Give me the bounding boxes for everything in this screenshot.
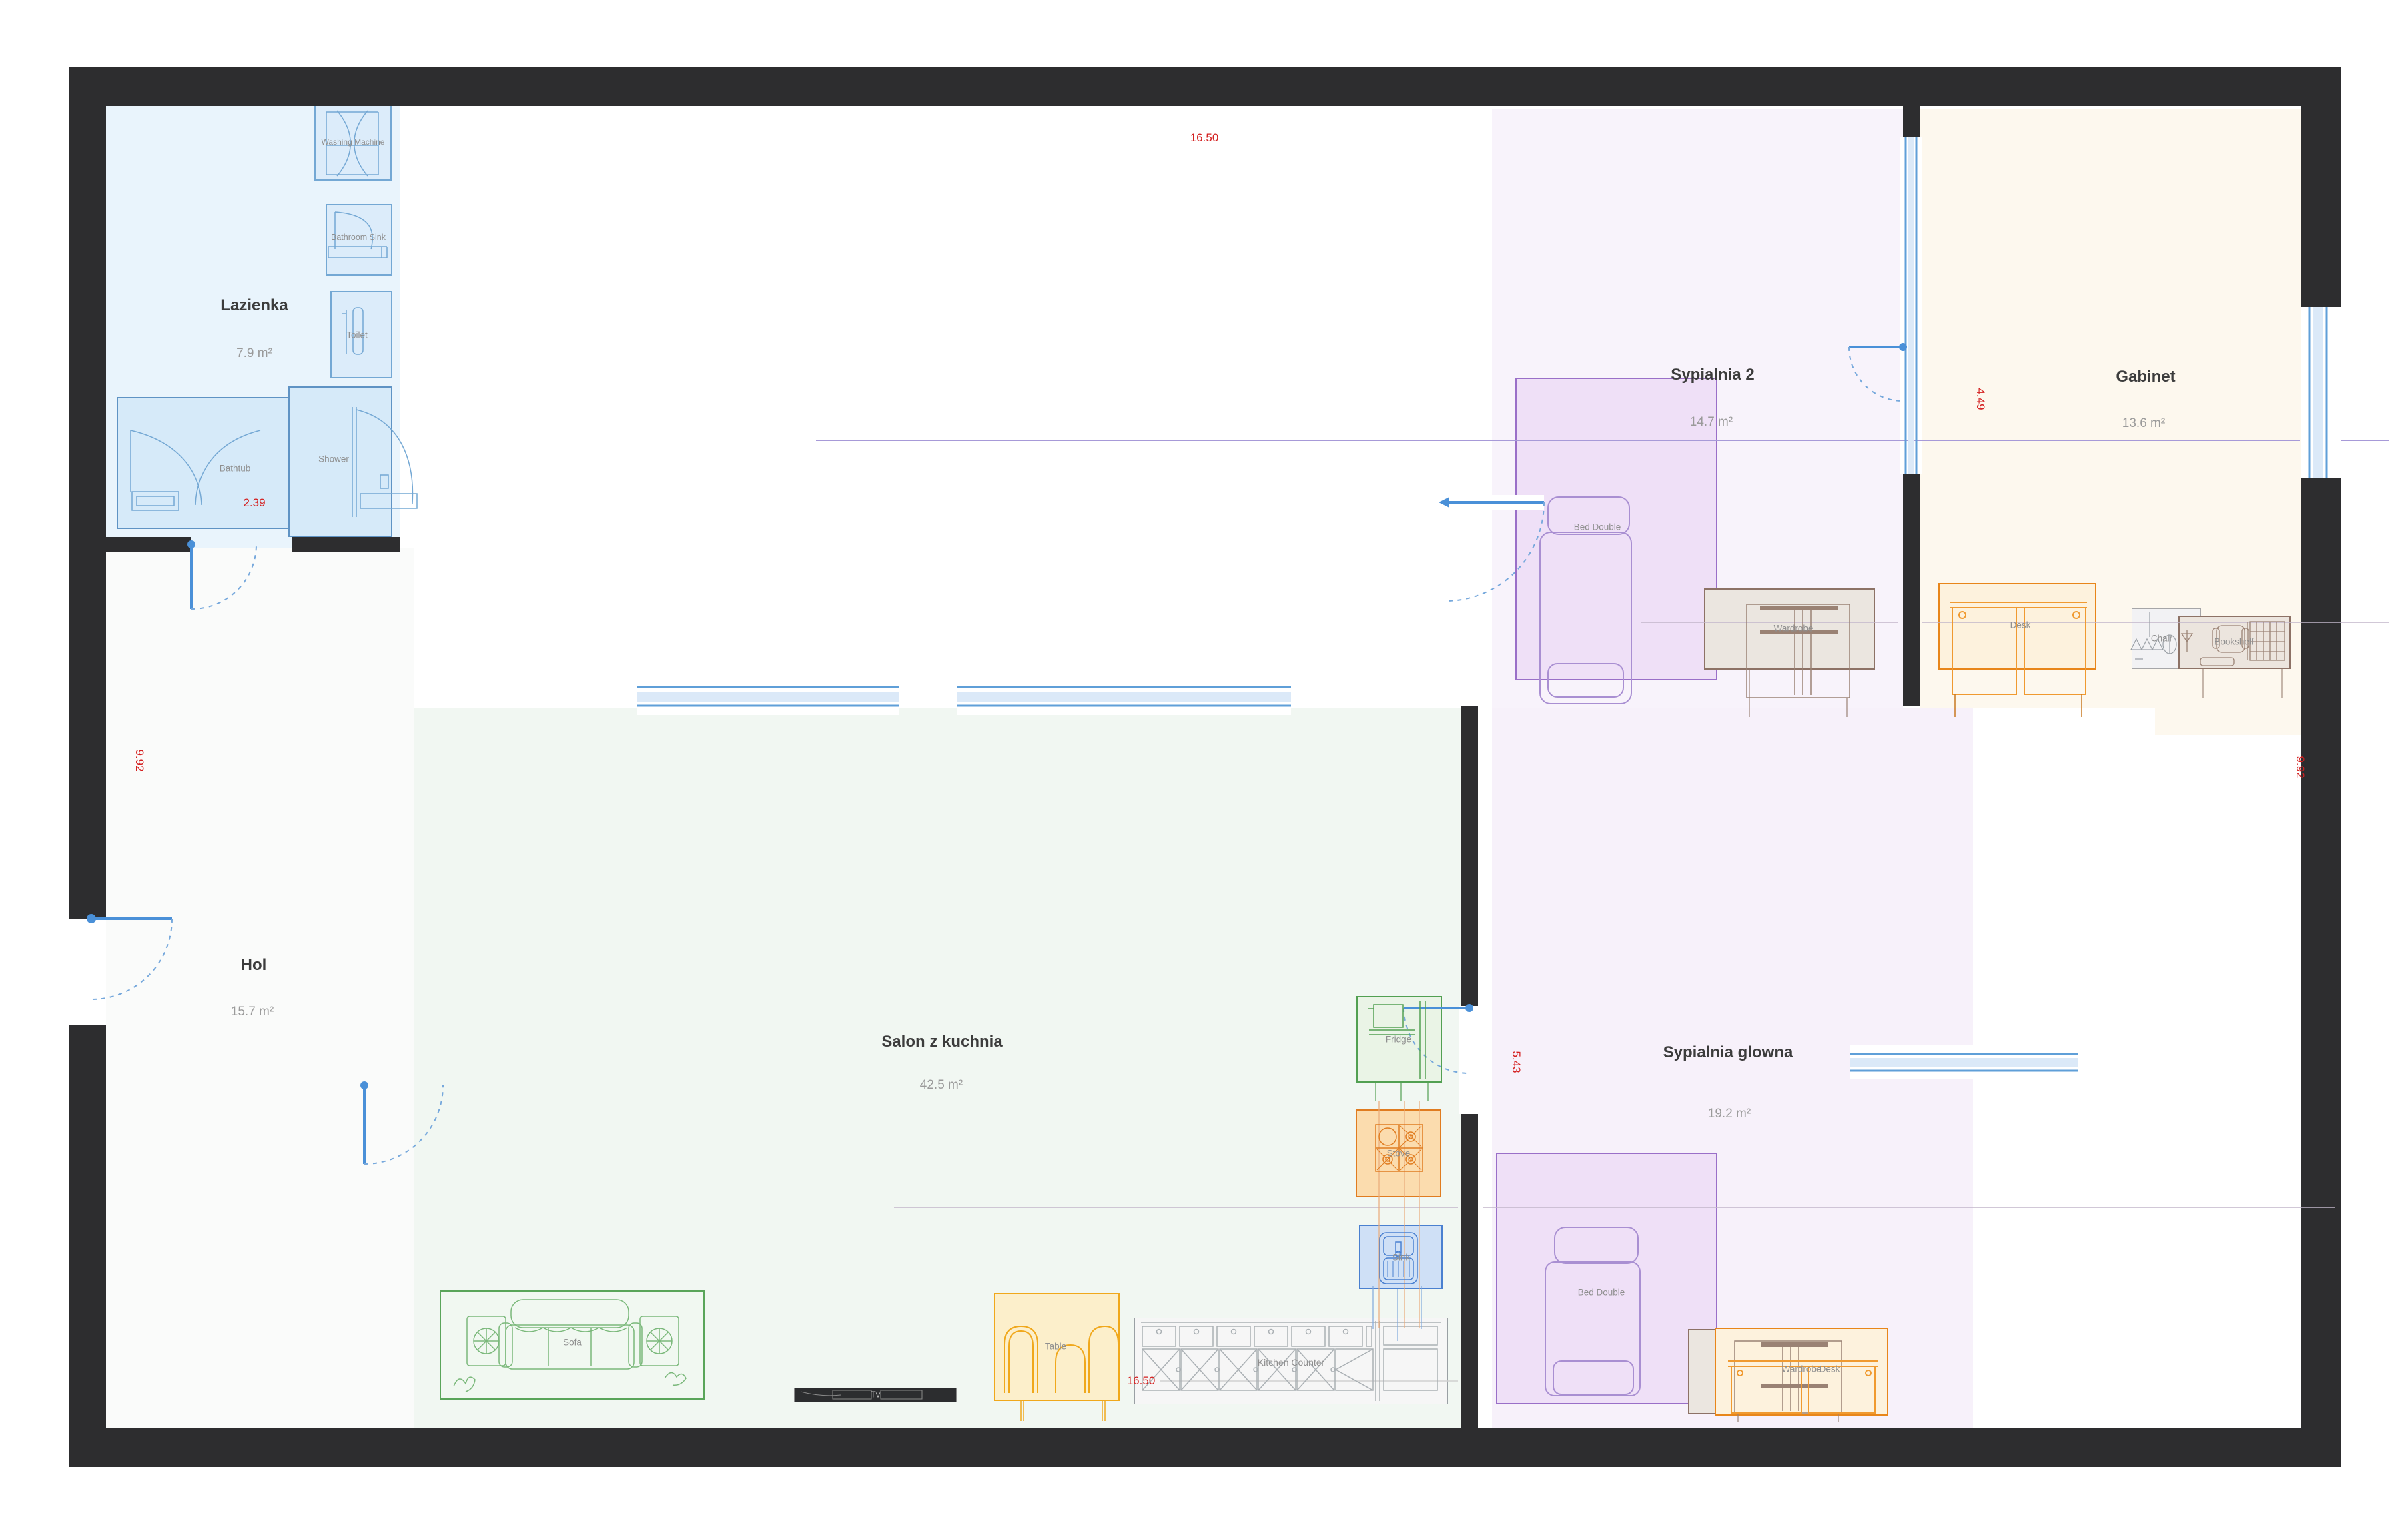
room-title-sypialnia-2: Sypialnia 2 (1671, 366, 1754, 384)
dimension-top-width: 16.50 (1190, 131, 1219, 145)
wall-bottom (69, 1428, 2341, 1467)
room-title-gabinet: Gabinet (2116, 368, 2175, 386)
wall-left-upper (69, 67, 106, 919)
wall-right-upper (2301, 67, 2341, 307)
wall-gabinet-stub (1903, 106, 1920, 137)
table[interactable] (994, 1293, 1120, 1401)
door-opening-salon (1459, 1006, 1481, 1114)
room-title-hol: Hol (241, 956, 267, 975)
desk-gabinet[interactable] (1938, 583, 2096, 670)
bed-zone-sypialnia-2[interactable] (1515, 378, 1717, 680)
wall-right-lower (2301, 478, 2341, 1428)
zone-gabinet-ext (2155, 708, 2301, 735)
window-band-2 (957, 677, 1291, 715)
dimension-bottom-width: 16.50 (1127, 1374, 1156, 1388)
wall-salon-east-lower (1461, 1114, 1478, 1428)
window-band-right-wall (2301, 307, 2341, 478)
room-area-sypialnia-2: 14.7 m² (1690, 415, 1733, 430)
tv[interactable] (794, 1388, 957, 1402)
wardrobe-sypialnia-2[interactable] (1704, 588, 1875, 670)
fridge[interactable] (1356, 996, 1442, 1083)
kitchen-counter[interactable] (1134, 1318, 1448, 1404)
shower[interactable] (288, 386, 392, 537)
desk-sypialnia-glowna[interactable] (1715, 1328, 1888, 1416)
window-band-1 (637, 677, 899, 715)
wall-top (69, 67, 2341, 106)
bed-zone-sypialnia-glowna[interactable] (1496, 1153, 1717, 1404)
window-band-sypialnia-glowna (1850, 1045, 2078, 1079)
sofa-group[interactable] (440, 1290, 705, 1400)
wall-left-lower (69, 1025, 106, 1428)
kitchen-sink[interactable] (1359, 1225, 1443, 1289)
wall-salon-east-upper (1461, 706, 1478, 1006)
room-area-salon: 42.5 m² (920, 1078, 963, 1093)
bathroom-sink[interactable] (326, 204, 392, 276)
dimension-gabinet-height: 4.49 (1974, 388, 1987, 410)
wall-gabinet-mid (1903, 474, 1920, 706)
dimension-left-height: 9.92 (133, 749, 146, 771)
room-title-sypialnia-glowna: Sypialnia glowna (1663, 1043, 1793, 1062)
room-area-hol: 15.7 m² (231, 1005, 274, 1019)
zone-hol[interactable] (106, 548, 414, 1428)
room-area-sypialnia-glowna: 19.2 m² (1708, 1107, 1751, 1121)
door-opening-sypialnia2 (1480, 495, 1544, 510)
dimension-right-height: 9.92 (2293, 756, 2307, 778)
bookshelf-gabinet[interactable] (2178, 616, 2291, 669)
room-title-lazienka: Lazienka (220, 296, 288, 315)
dimension-bathroom-width: 2.39 (243, 496, 265, 510)
window-band-gabinet (1900, 137, 1922, 474)
room-area-gabinet: 13.6 m² (2122, 416, 2165, 431)
bathtub[interactable] (117, 397, 312, 529)
wall-bathroom-left (106, 537, 191, 552)
stove[interactable] (1356, 1109, 1441, 1197)
room-area-lazienka: 7.9 m² (236, 346, 272, 361)
wall-bathroom-right (292, 537, 400, 552)
washing-machine[interactable] (314, 103, 392, 181)
dimension-salon-height: 5.43 (1509, 1051, 1523, 1073)
room-title-salon: Salon z kuchnia (881, 1033, 1002, 1051)
toilet[interactable] (330, 291, 392, 378)
floorplan-canvas: Lazienka 7.9 m² Hol 15.7 m² Salon z kuch… (0, 0, 2408, 1519)
